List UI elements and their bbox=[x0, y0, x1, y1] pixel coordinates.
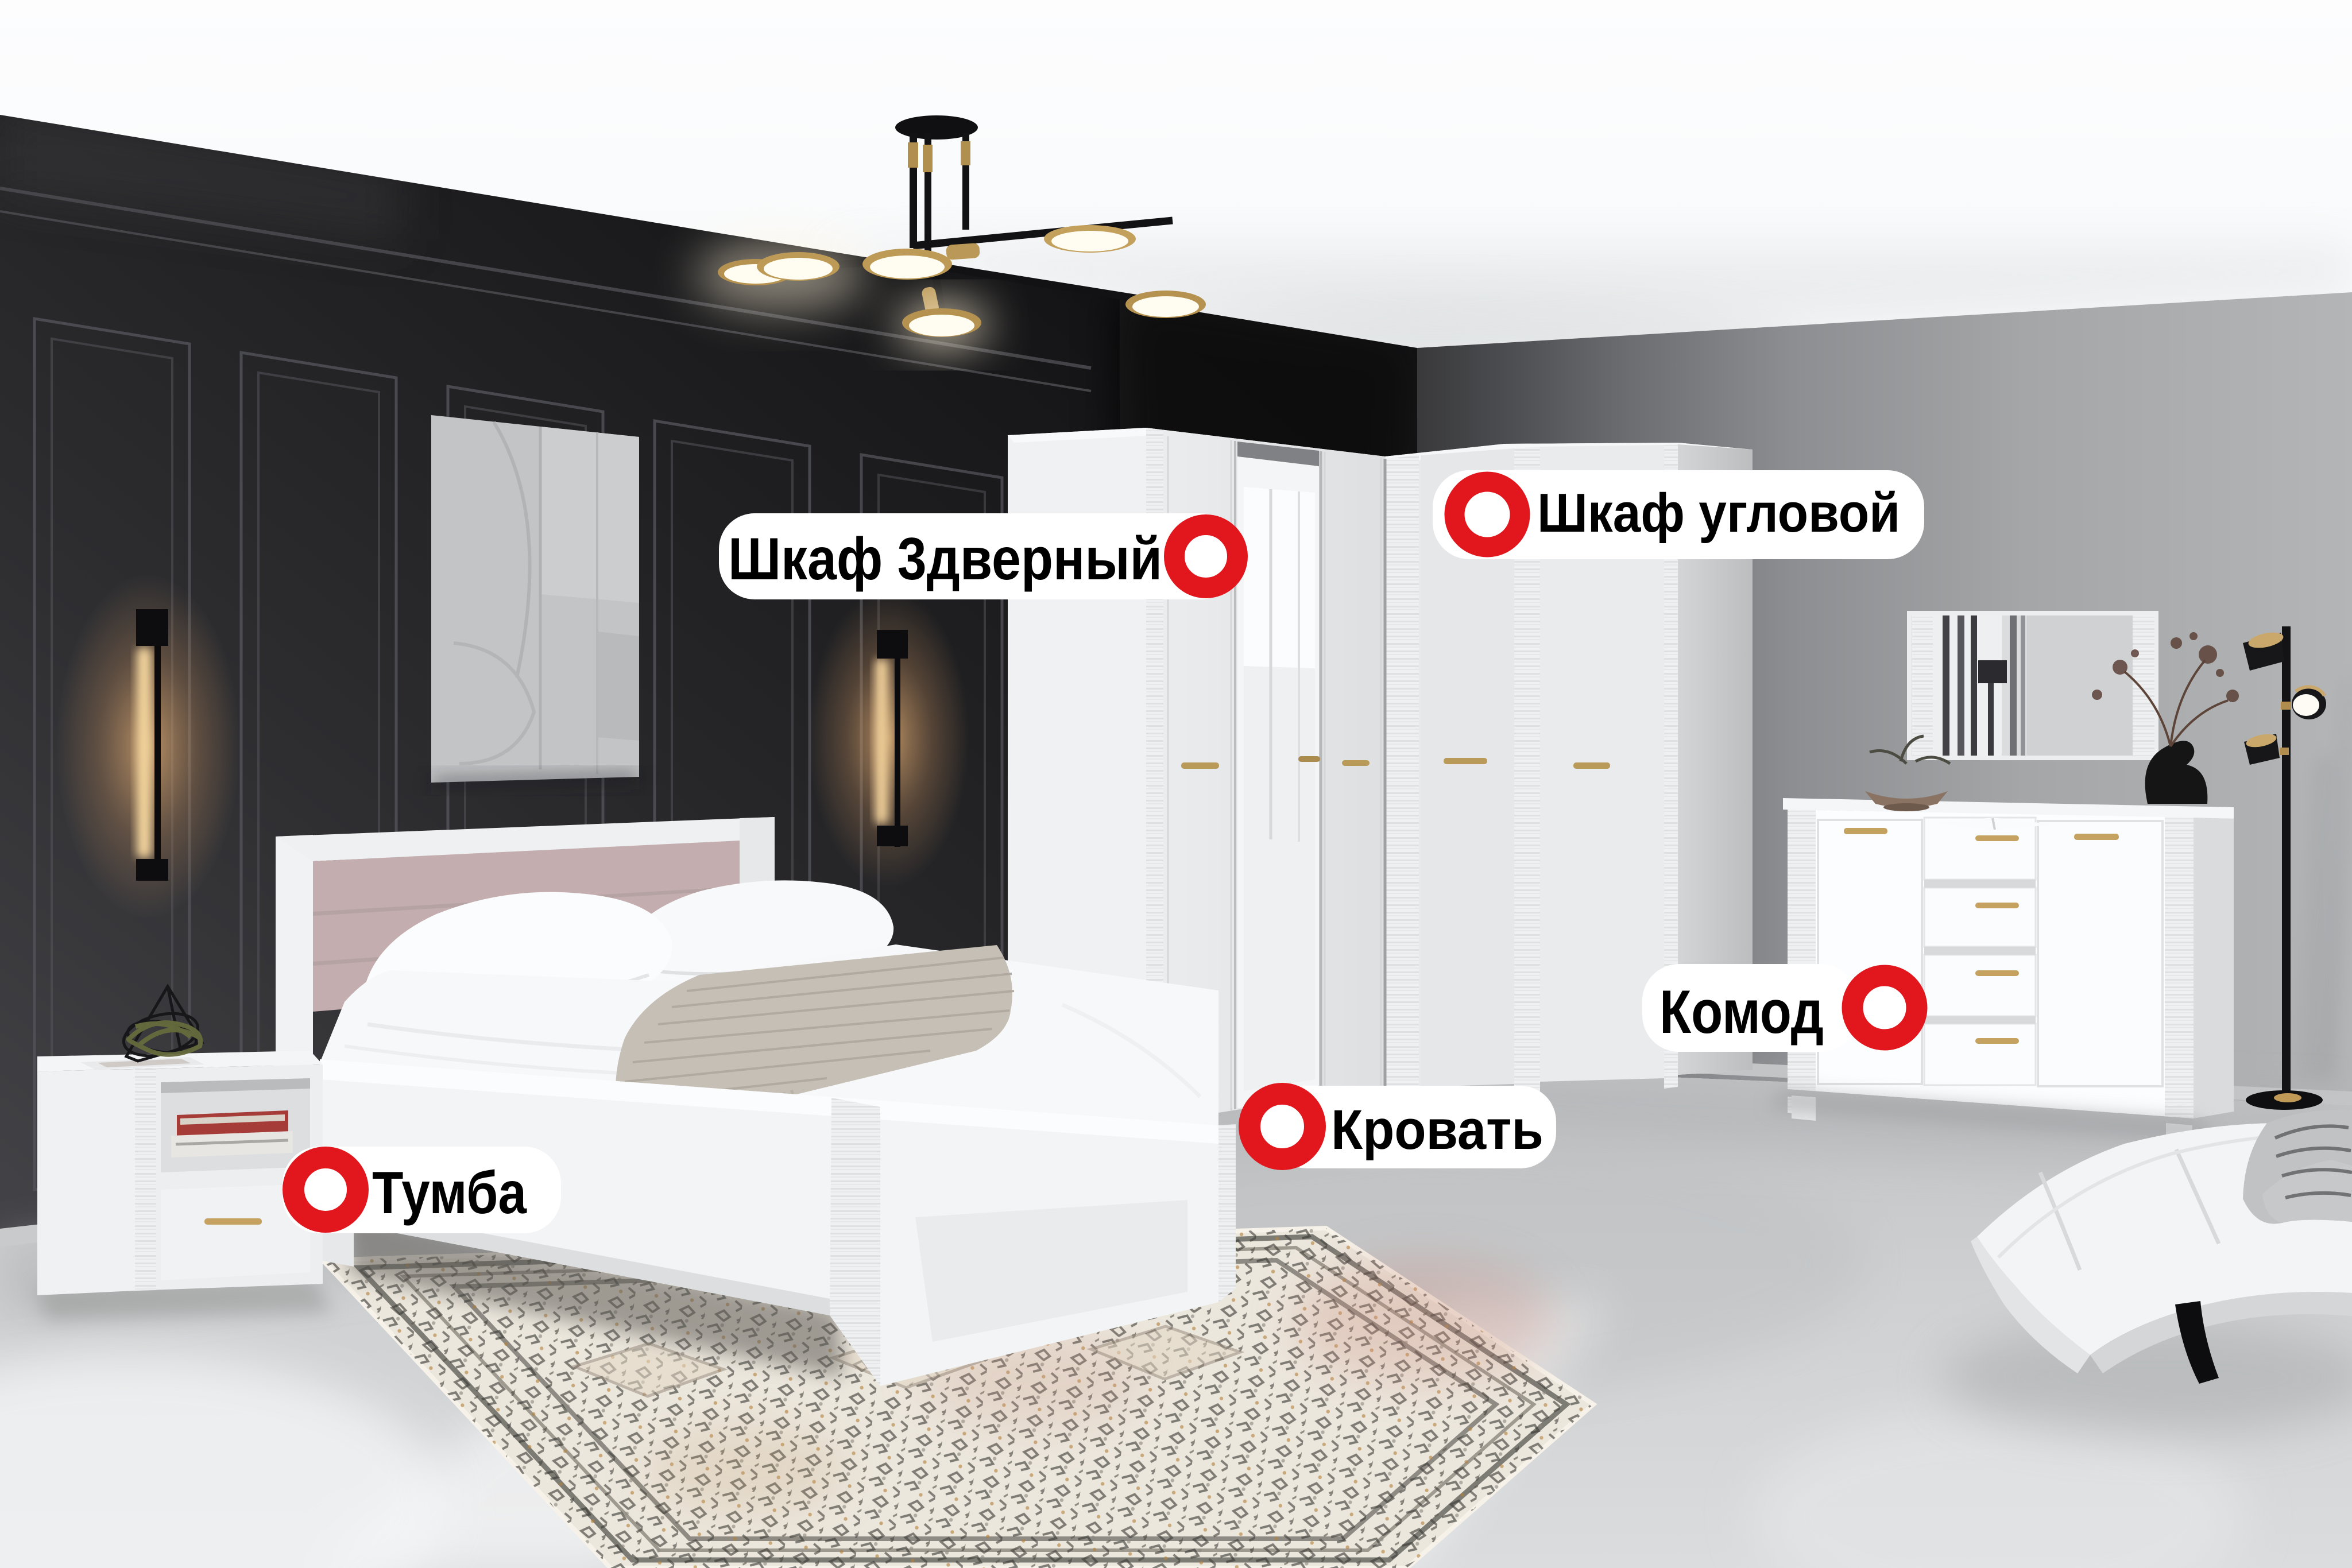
svg-text:Комод: Комод bbox=[1659, 977, 1824, 1046]
svg-text:Кровать: Кровать bbox=[1331, 1098, 1543, 1161]
svg-text:Тумба: Тумба bbox=[372, 1160, 527, 1226]
svg-text:Шкаф угловой: Шкаф угловой bbox=[1537, 482, 1900, 544]
svg-text:Шкаф 3дверный: Шкаф 3дверный bbox=[728, 526, 1162, 593]
